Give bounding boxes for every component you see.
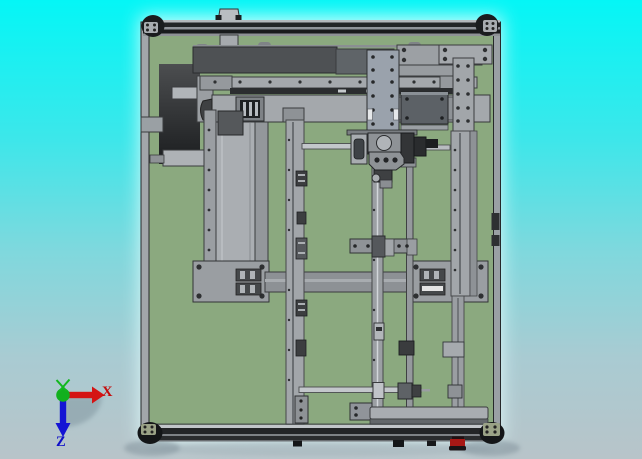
svg-text:X: X (102, 384, 113, 400)
svg-text:Z: Z (56, 434, 66, 450)
